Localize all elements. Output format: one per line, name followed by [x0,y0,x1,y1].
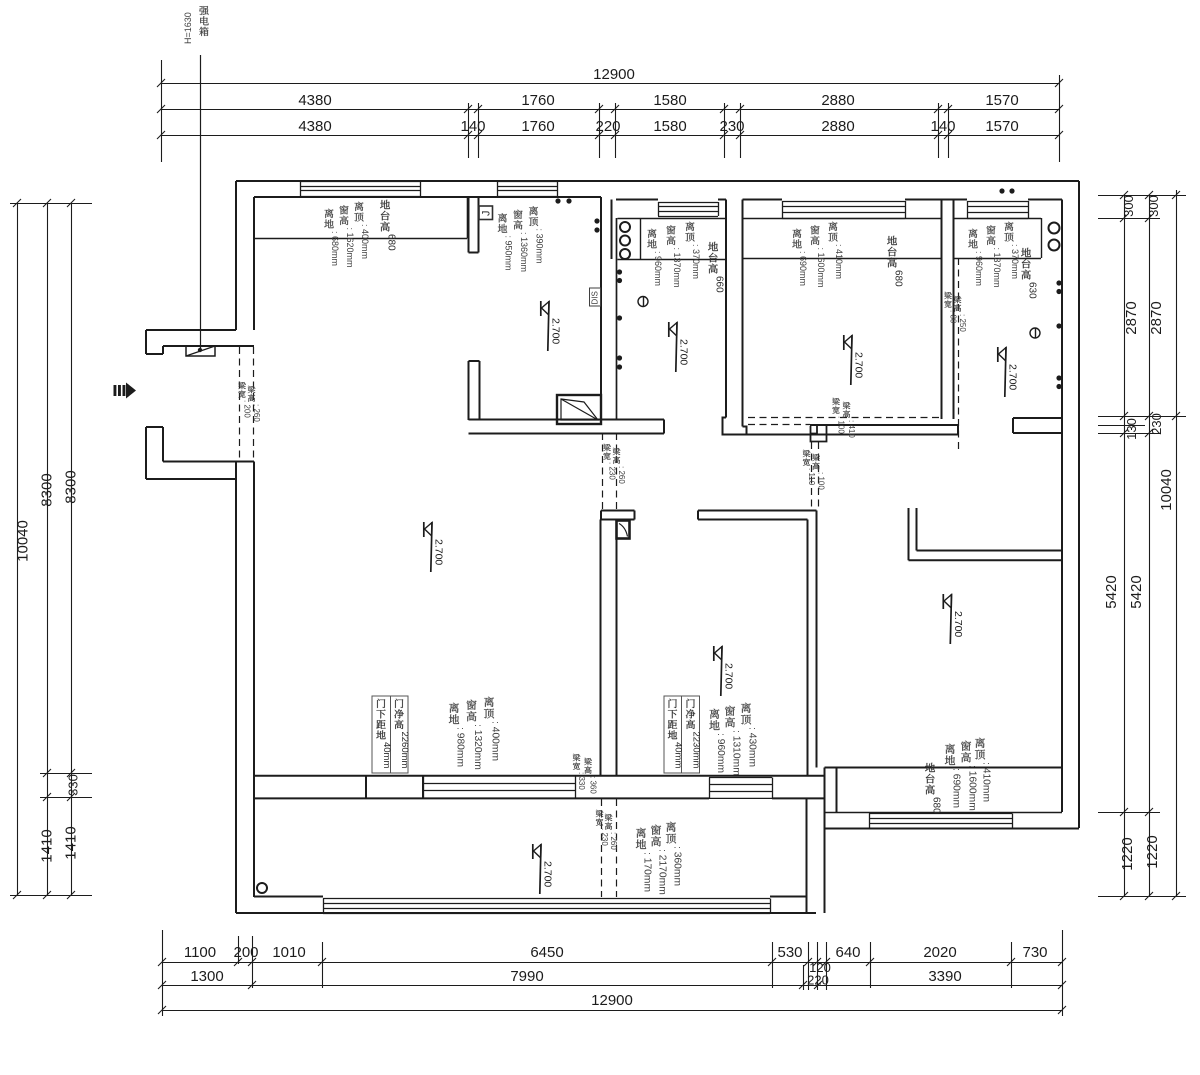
svg-text:5420: 5420 [1128,575,1145,608]
svg-text:: 1370mm: : 1370mm [992,248,1002,288]
svg-text:: 1600mm: : 1600mm [816,248,826,288]
svg-text:2.700: 2.700 [550,318,562,344]
svg-text:: 370mm: : 370mm [1010,244,1020,279]
svg-text:200: 200 [233,944,258,961]
svg-text:140: 140 [460,118,485,135]
svg-text:: 360: : 360 [589,776,598,794]
svg-text:2260mm: 2260mm [399,732,410,769]
svg-text:4380: 4380 [298,118,331,135]
svg-text:: 410: : 410 [847,420,856,438]
svg-text:2.700: 2.700 [542,861,554,887]
svg-text:1580: 1580 [653,92,686,109]
svg-text:2.700: 2.700 [433,539,445,565]
svg-text:: 1620mm: : 1620mm [345,228,355,268]
svg-text:330: 330 [66,774,81,796]
svg-text:: 110: : 110 [807,468,816,486]
svg-text:7990: 7990 [510,968,543,985]
svg-text:: 680mm: : 680mm [330,231,340,266]
svg-text:10040: 10040 [15,520,32,562]
svg-text:: 370mm: : 370mm [691,244,701,279]
svg-text:10040: 10040 [1158,469,1175,511]
svg-text:1410: 1410 [63,826,80,859]
svg-text:220: 220 [807,973,829,988]
svg-text:40mm: 40mm [381,742,392,768]
svg-text:2.700: 2.700 [853,352,865,378]
svg-text:530: 530 [777,944,802,961]
svg-text:12900: 12900 [593,66,635,83]
svg-text:680: 680 [385,234,396,251]
svg-text:: 260: : 260 [252,404,261,422]
svg-text:: 230: : 230 [608,462,617,480]
svg-text:8300: 8300 [63,470,80,503]
svg-text:: 1310mm: : 1310mm [730,730,741,776]
svg-text:: 1370mm: : 1370mm [672,248,682,288]
svg-text:: 100: : 100 [837,416,846,434]
svg-text:12900: 12900 [591,992,633,1009]
svg-text:DIS: DIS [591,291,600,304]
svg-text:2880: 2880 [821,118,854,135]
svg-text:: 960mm: : 960mm [653,251,663,286]
svg-text:2230mm: 2230mm [691,732,702,769]
svg-text:2880: 2880 [821,92,854,109]
svg-text:230: 230 [1149,413,1164,435]
svg-text:: 260: : 260 [617,466,626,484]
svg-text:2.700: 2.700 [952,611,964,637]
svg-text:1760: 1760 [521,118,554,135]
svg-text:: 170mm: : 170mm [641,852,652,892]
svg-text:680: 680 [930,797,941,814]
svg-text:1220: 1220 [1119,837,1136,870]
svg-text:680: 680 [892,270,903,287]
svg-text:2.700: 2.700 [723,663,735,689]
svg-text:230: 230 [719,118,744,135]
svg-text:: 950mm: : 950mm [504,236,514,271]
svg-text:: 330: : 330 [577,772,586,790]
svg-text:1100: 1100 [184,944,216,961]
svg-text:: 960mm: : 960mm [974,251,984,286]
svg-text:: 100: : 100 [817,472,826,490]
svg-text:2.700: 2.700 [678,339,690,365]
svg-text:: 690mm: : 690mm [798,251,808,286]
svg-text:300: 300 [1121,195,1136,217]
svg-text:H=1630: H=1630 [183,12,193,44]
svg-text:: 230: : 230 [600,828,609,846]
svg-text:5420: 5420 [1103,575,1120,608]
svg-text:: 200: : 200 [243,400,252,418]
svg-text:: 80: : 80 [949,310,958,324]
svg-text:40mm: 40mm [673,742,684,768]
svg-text:220: 220 [595,118,620,135]
svg-text:: 980mm: : 980mm [454,727,465,767]
svg-text:: 360mm: : 360mm [671,846,682,886]
svg-text:130: 130 [1124,418,1139,440]
svg-text:6450: 6450 [530,944,563,961]
svg-text:660: 660 [713,276,724,293]
svg-text:3390: 3390 [928,968,961,985]
svg-text:730: 730 [1022,944,1047,961]
svg-text:: 400mm: : 400mm [360,224,370,259]
svg-text:1580: 1580 [653,118,686,135]
svg-text:1570: 1570 [985,92,1018,109]
svg-text:: 260: : 260 [609,832,618,850]
svg-text:: 690mm: : 690mm [950,768,961,808]
svg-text:1760: 1760 [521,92,554,109]
svg-text:2020: 2020 [923,944,956,961]
svg-text:140: 140 [930,118,955,135]
svg-text:2870: 2870 [1148,301,1165,334]
svg-text:: 390mm: : 390mm [535,229,545,264]
svg-text:: 1320mm: : 1320mm [472,724,483,770]
svg-text:: 400mm: : 400mm [489,721,500,761]
svg-text:1410: 1410 [39,829,56,862]
svg-text:: 250: : 250 [958,314,967,332]
svg-text:: 1600mm: : 1600mm [966,765,977,811]
svg-text:: 1360mm: : 1360mm [519,232,529,272]
svg-text:640: 640 [835,944,860,961]
svg-text:4380: 4380 [298,92,331,109]
svg-text:: 410mm: : 410mm [980,762,991,802]
svg-text:1300: 1300 [190,968,223,985]
svg-text:2.700: 2.700 [1007,364,1019,390]
svg-text:2870: 2870 [1123,301,1140,334]
svg-text:630: 630 [1026,282,1037,299]
svg-text:J: J [481,211,493,217]
svg-text:8300: 8300 [39,473,56,506]
svg-text:1570: 1570 [985,118,1018,135]
svg-text:: 430mm: : 430mm [746,727,757,767]
svg-text:: 410mm: : 410mm [834,244,844,279]
svg-text:1010: 1010 [272,944,305,961]
svg-text:: 2170mm: : 2170mm [656,849,667,895]
svg-text:300: 300 [1146,195,1161,217]
svg-text:1220: 1220 [1144,835,1161,868]
svg-text:: 960mm: : 960mm [715,733,726,773]
